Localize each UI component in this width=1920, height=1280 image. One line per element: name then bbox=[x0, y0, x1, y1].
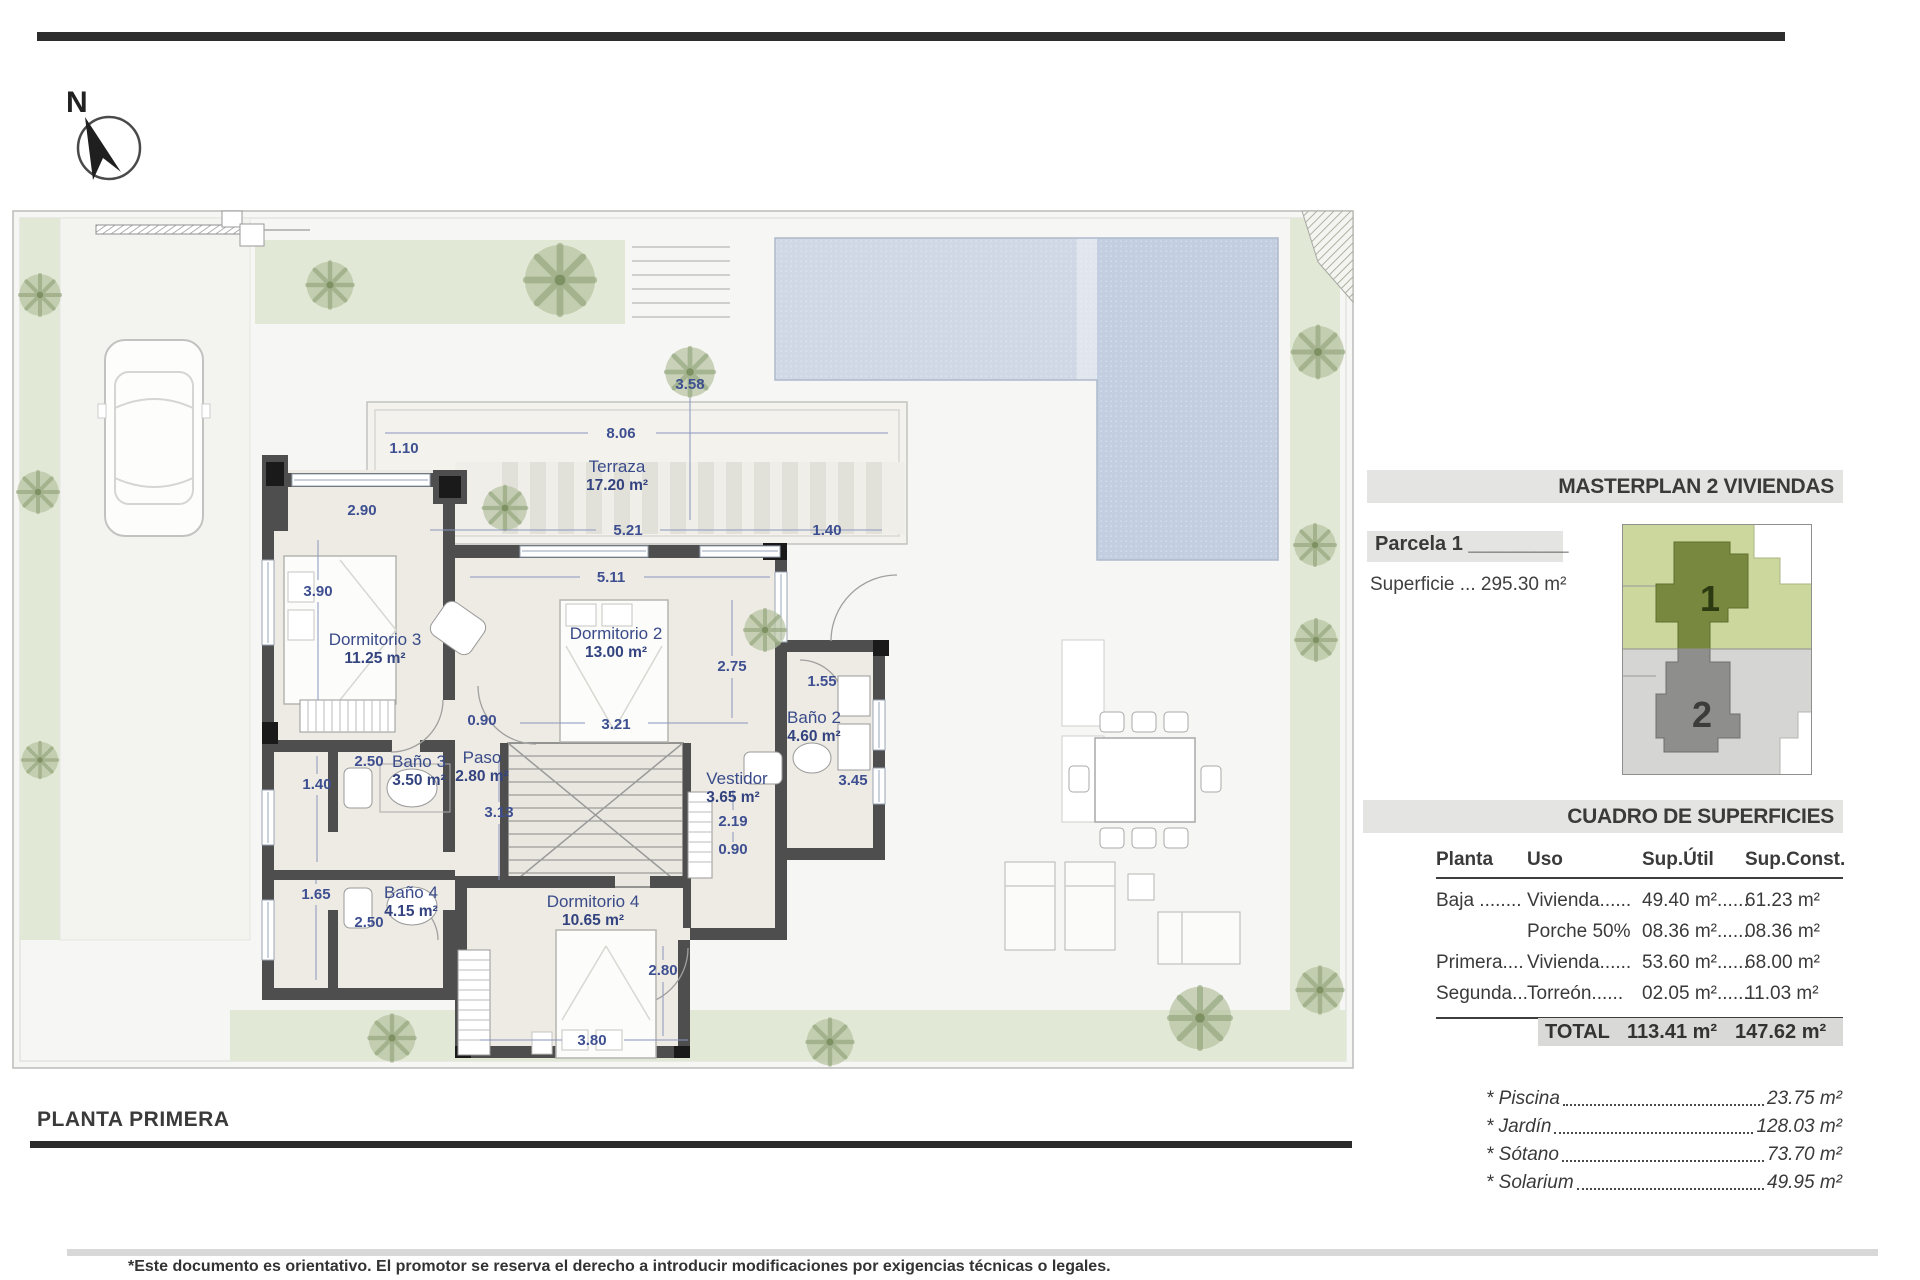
svg-text:3.21: 3.21 bbox=[601, 716, 630, 733]
room-terraza: Terraza bbox=[589, 457, 646, 476]
svg-text:17.20 m²: 17.20 m² bbox=[586, 477, 648, 494]
svg-text:3.80: 3.80 bbox=[577, 1032, 606, 1049]
svg-text:2.50: 2.50 bbox=[354, 914, 383, 931]
total-const: 147.62 m² bbox=[1735, 1021, 1826, 1044]
masterplan-diagram: 1 2 bbox=[1622, 524, 1812, 775]
room-bano-4: Baño 4 bbox=[384, 883, 438, 902]
svg-text:0.90: 0.90 bbox=[718, 841, 747, 858]
surfaces-table: Planta Uso Sup.Útil Sup.Const. Baja ....… bbox=[1436, 844, 1843, 1019]
site-plan: Terraza 17.20 m² Dormitorio 3 11.25 m² D… bbox=[0, 170, 1360, 1075]
svg-text:8.06: 8.06 bbox=[606, 425, 635, 442]
svg-text:3.90: 3.90 bbox=[303, 583, 332, 600]
total-util: 113.41 m² bbox=[1627, 1021, 1717, 1044]
footer-disclaimer: *Este documento es orientativo. El promo… bbox=[128, 1258, 1111, 1276]
svg-text:5.11: 5.11 bbox=[597, 569, 625, 586]
list-item: * Jardín128.03 m² bbox=[1486, 1110, 1842, 1138]
driveway bbox=[60, 218, 250, 940]
parcela-label: Parcela 1 _________ bbox=[1375, 533, 1569, 556]
room-bano-3: Baño 3 bbox=[392, 752, 446, 771]
col-planta: Planta bbox=[1436, 849, 1493, 871]
col-uso: Uso bbox=[1527, 849, 1563, 871]
left-lawn-strip bbox=[20, 218, 60, 940]
svg-text:3.65 m²: 3.65 m² bbox=[706, 789, 759, 806]
room-dormitorio-4: Dormitorio 4 bbox=[547, 892, 640, 911]
extras-list: * Piscina23.75 m² * Jardín128.03 m² * Só… bbox=[1486, 1082, 1842, 1194]
col-sup-util: Sup.Útil bbox=[1642, 849, 1714, 871]
svg-text:5.21: 5.21 bbox=[613, 522, 642, 539]
svg-text:1.40: 1.40 bbox=[812, 522, 841, 539]
table-row: Porche 50% 08.36 m²...... 08.36 m² bbox=[1436, 916, 1843, 947]
building-1-number: 1 bbox=[1700, 578, 1720, 619]
svg-text:3.45: 3.45 bbox=[838, 772, 867, 789]
parcela-superficie: Superficie ... 295.30 m² bbox=[1370, 574, 1566, 596]
top-border-bar bbox=[37, 32, 1785, 41]
surfaces-title-bar: CUADRO DE SUPERFICIES bbox=[1363, 800, 1843, 833]
room-dormitorio-3: Dormitorio 3 bbox=[329, 630, 422, 649]
masterplan-title-bar: MASTERPLAN 2 VIVIENDAS bbox=[1367, 470, 1843, 503]
parcela-underline: _________ bbox=[1468, 533, 1568, 555]
col-sup-const: Sup.Const. bbox=[1745, 849, 1845, 871]
svg-text:13.00 m²: 13.00 m² bbox=[585, 644, 647, 661]
list-item: * Piscina23.75 m² bbox=[1486, 1082, 1842, 1110]
svg-text:3.13: 3.13 bbox=[484, 804, 513, 821]
room-vestidor: Vestidor bbox=[706, 769, 768, 788]
footer-divider bbox=[67, 1249, 1878, 1256]
svg-text:11.25 m²: 11.25 m² bbox=[344, 650, 405, 667]
building-2-number: 2 bbox=[1692, 694, 1712, 735]
total-bar: TOTAL 113.41 m² 147.62 m² bbox=[1538, 1018, 1843, 1046]
list-item: * Sótano73.70 m² bbox=[1486, 1138, 1842, 1166]
svg-text:1.65: 1.65 bbox=[301, 886, 330, 903]
room-paso: Paso bbox=[463, 748, 502, 767]
list-item: * Solarium49.95 m² bbox=[1486, 1166, 1842, 1194]
room-bano-2: Baño 2 bbox=[787, 708, 841, 727]
svg-text:2.19: 2.19 bbox=[718, 813, 747, 830]
table-row: Baja ........ Vivienda...... 49.40 m²...… bbox=[1436, 885, 1843, 916]
title-underline bbox=[30, 1141, 1352, 1148]
svg-text:2.75: 2.75 bbox=[717, 658, 746, 675]
svg-text:1.55: 1.55 bbox=[807, 673, 836, 690]
car bbox=[98, 340, 210, 536]
total-label: TOTAL bbox=[1545, 1021, 1610, 1044]
north-label: N bbox=[66, 86, 88, 119]
table-row: Primera.... Vivienda...... 53.60 m².....… bbox=[1436, 947, 1843, 978]
surfaces-title: CUADRO DE SUPERFICIES bbox=[1567, 805, 1834, 829]
floorplan-page: N bbox=[0, 0, 1920, 1280]
svg-text:1.10: 1.10 bbox=[389, 440, 418, 457]
svg-text:10.65 m²: 10.65 m² bbox=[562, 912, 624, 929]
svg-text:4.15 m²: 4.15 m² bbox=[384, 903, 437, 920]
svg-text:2.50: 2.50 bbox=[354, 753, 383, 770]
table-row: Segunda... Torreón...... 02.05 m²...... … bbox=[1436, 978, 1843, 1009]
page-title: PLANTA PRIMERA bbox=[37, 1108, 230, 1132]
masterplan-title: MASTERPLAN 2 VIVIENDAS bbox=[1558, 475, 1834, 499]
staircase bbox=[508, 743, 683, 887]
svg-text:3.58: 3.58 bbox=[675, 376, 704, 393]
svg-text:3.50 m²: 3.50 m² bbox=[392, 772, 445, 789]
svg-text:2.90: 2.90 bbox=[347, 502, 376, 519]
surfaces-header-row: Planta Uso Sup.Útil Sup.Const. bbox=[1436, 844, 1843, 879]
svg-text:4.60 m²: 4.60 m² bbox=[787, 728, 840, 745]
svg-text:1.40: 1.40 bbox=[302, 776, 331, 793]
svg-text:2.80 m²: 2.80 m² bbox=[455, 768, 508, 785]
svg-text:2.80: 2.80 bbox=[648, 962, 677, 979]
room-dormitorio-2: Dormitorio 2 bbox=[570, 624, 663, 643]
svg-text:0.90: 0.90 bbox=[467, 712, 496, 729]
